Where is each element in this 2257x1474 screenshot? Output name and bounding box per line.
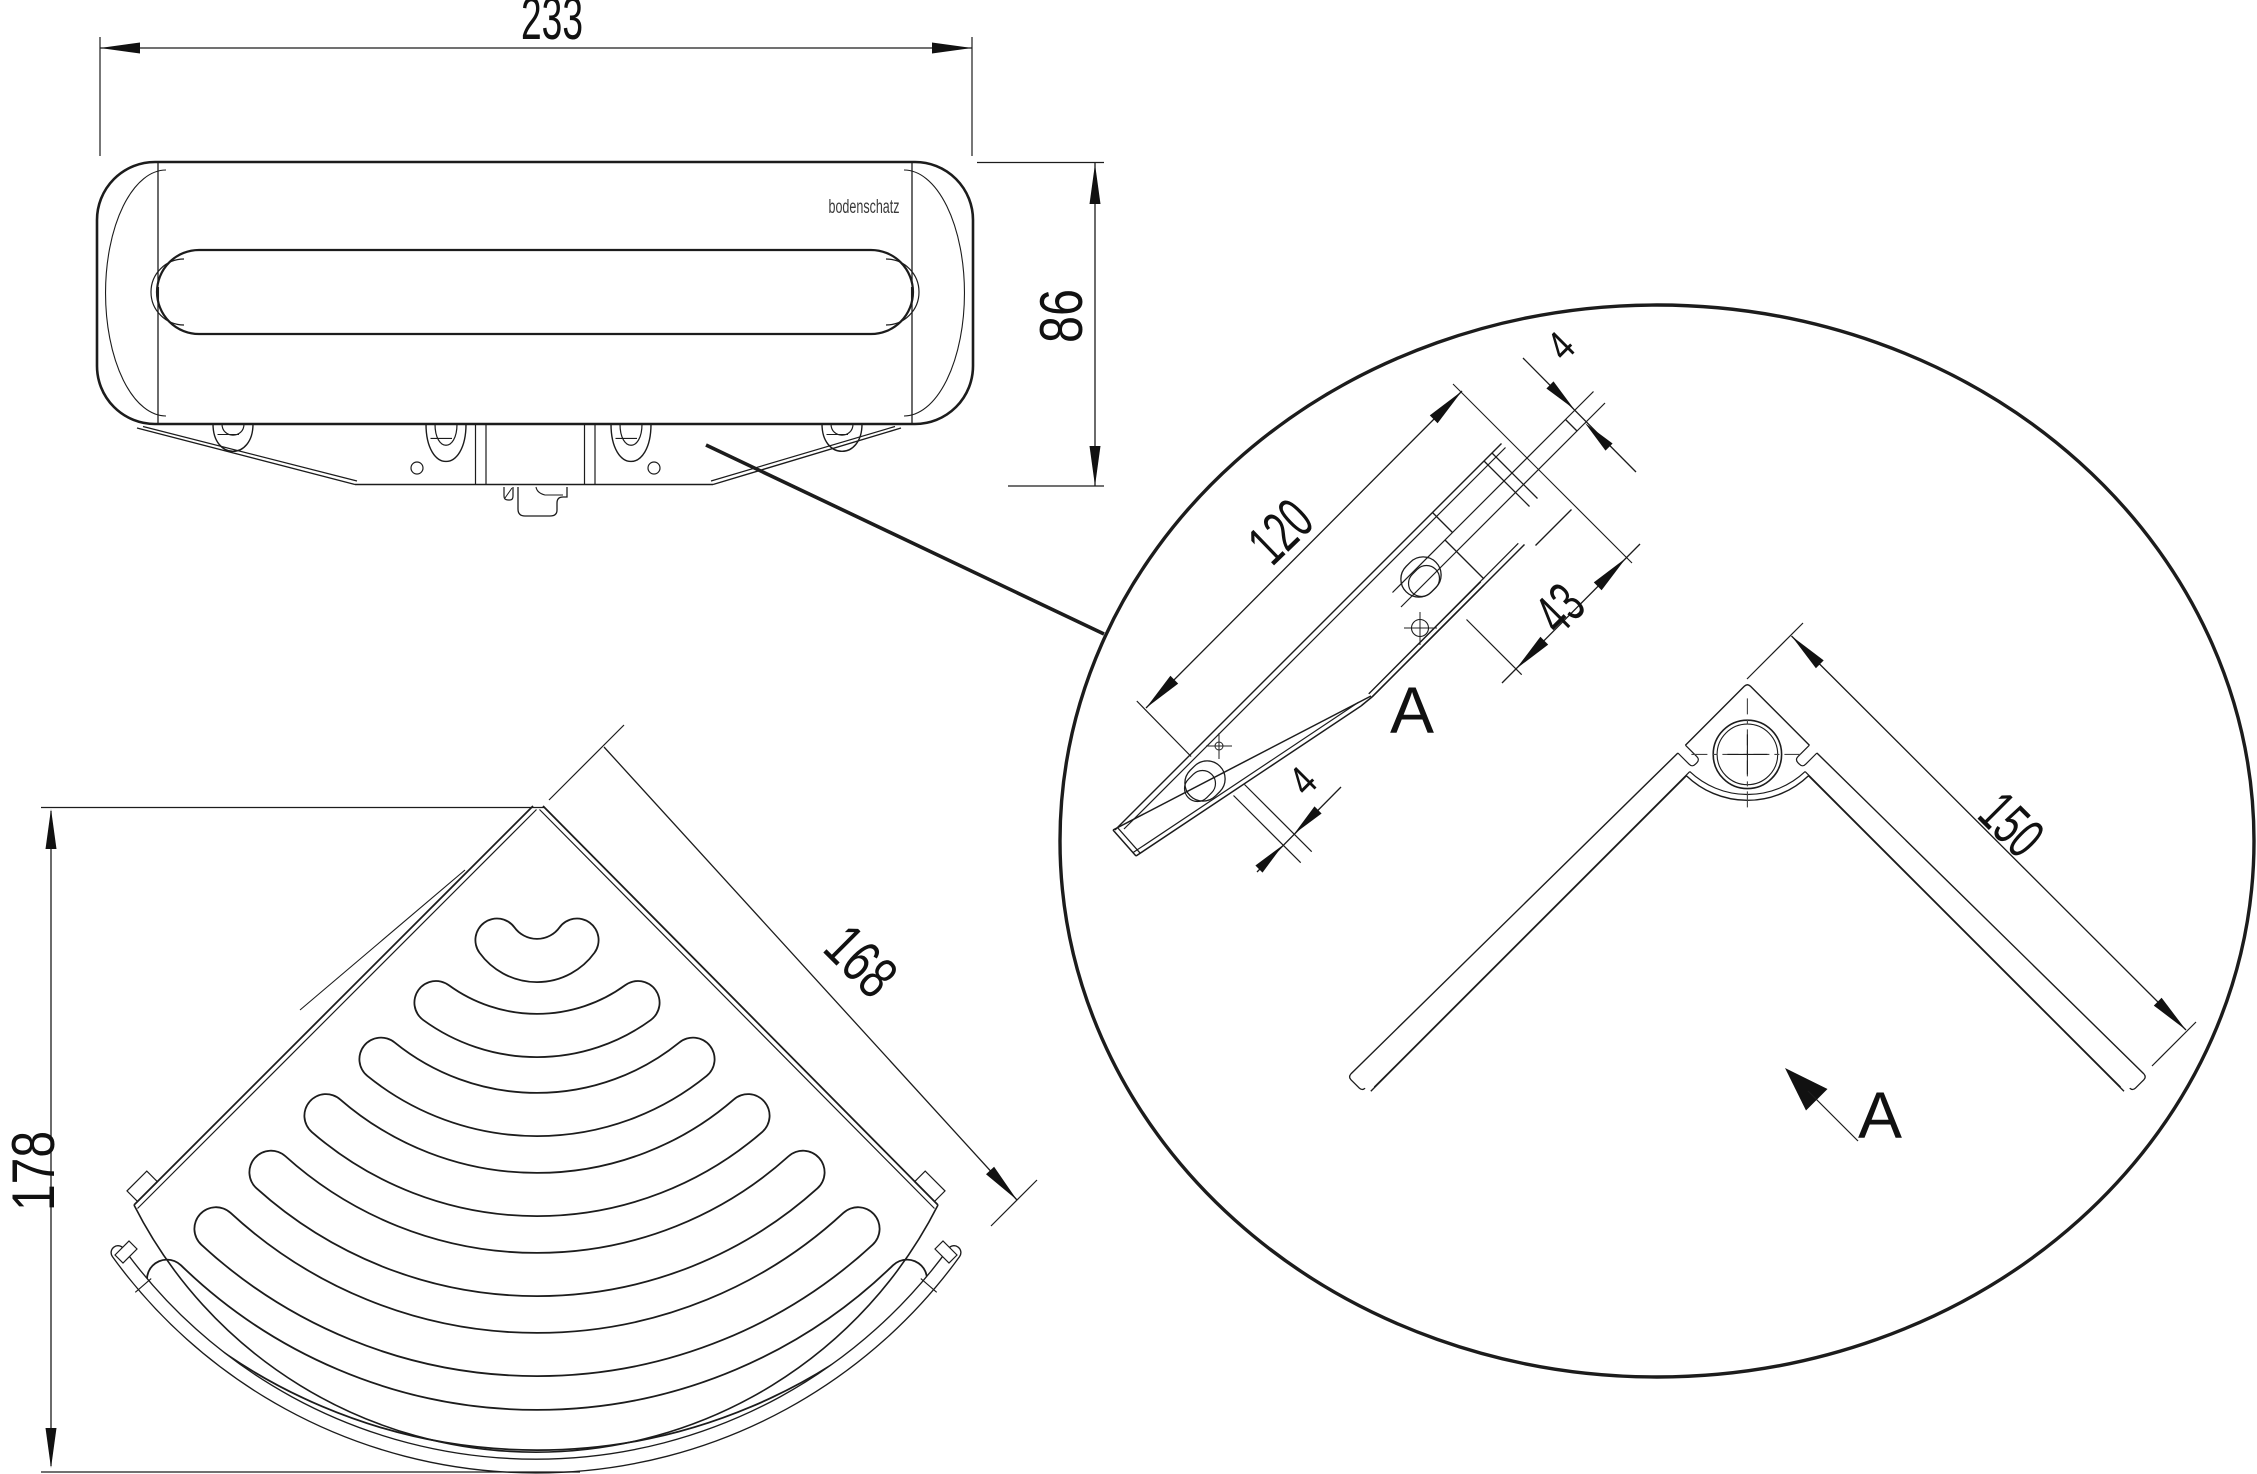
svg-text:178: 178 [0,1131,67,1211]
svg-text:86: 86 [1028,289,1095,343]
svg-text:bodenschatz: bodenschatz [829,197,900,218]
svg-text:233: 233 [521,0,583,52]
svg-text:A: A [1390,673,1434,747]
svg-text:A: A [1858,1078,1902,1152]
